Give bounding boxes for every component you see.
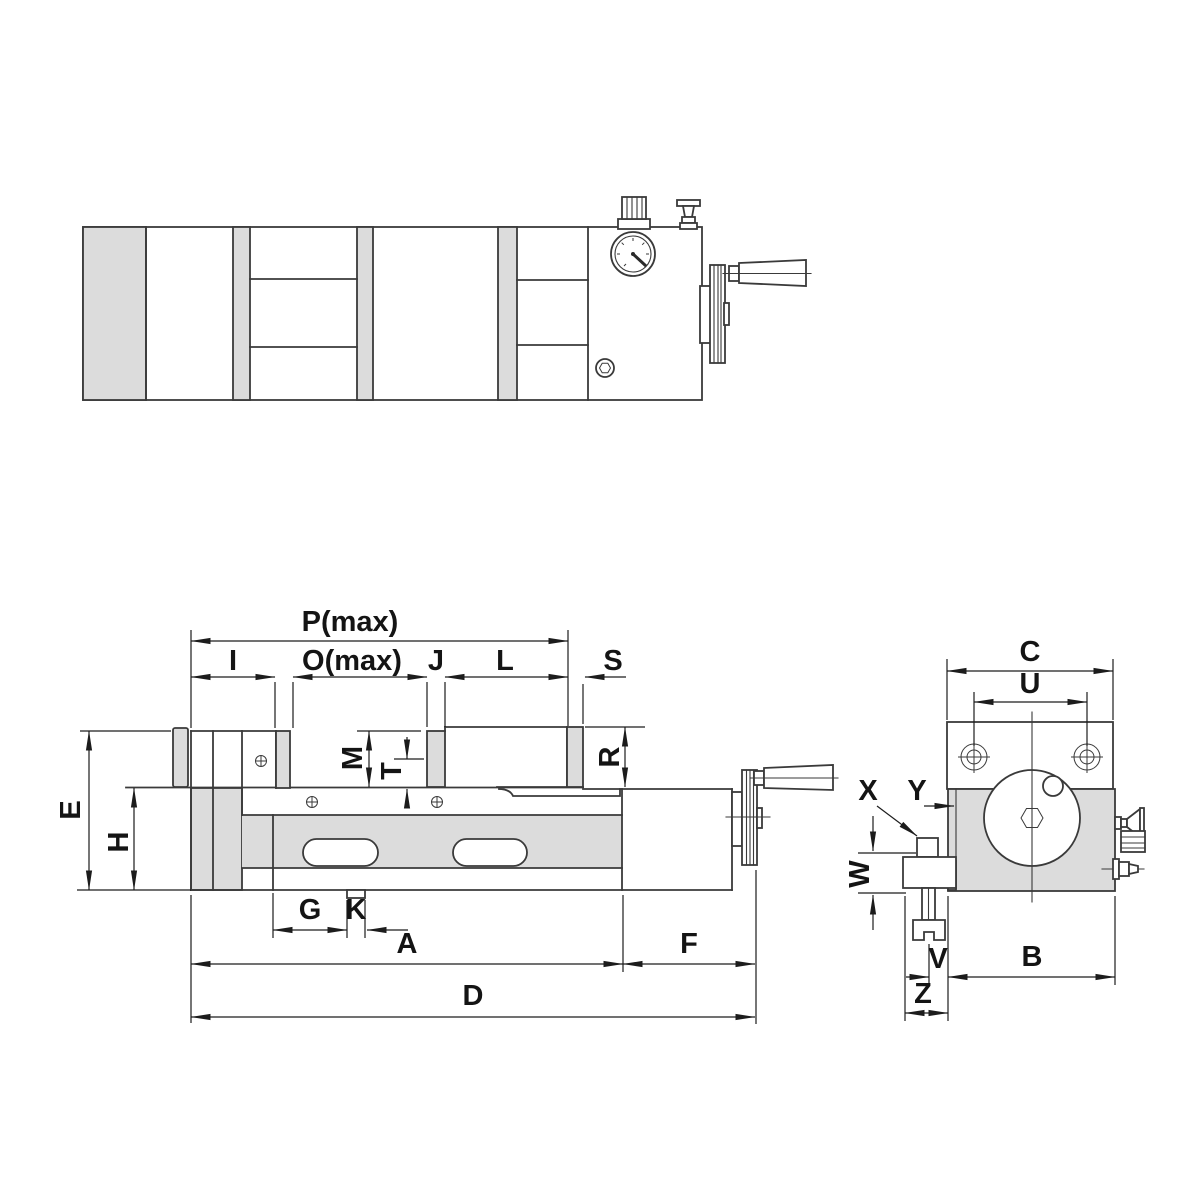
jaw-insert-movable [427, 731, 445, 787]
base-slot-2 [453, 839, 527, 866]
oil-port [1043, 776, 1063, 796]
clamp-tnut [913, 920, 945, 940]
bed-rib-band [242, 815, 622, 868]
dim-label-g: G [299, 894, 322, 926]
jaw-insert-fixed [276, 731, 290, 788]
dim-label-k: K [346, 894, 367, 926]
hydraulic-fitting-upper [1115, 808, 1145, 852]
dim-label-b: B [1022, 941, 1043, 973]
clamp-arm [903, 857, 956, 888]
dim-label-p-max: P(max) [302, 606, 399, 638]
dim-label-v: V [928, 943, 948, 975]
clamp-nut [917, 838, 938, 857]
top-view [83, 197, 811, 400]
drawing-canvas: P(max) I O(max) J L S M T R E H G K A F … [0, 0, 1200, 1200]
front-view [126, 727, 838, 898]
dim-label-f: F [680, 928, 698, 960]
dim-label-r: R [594, 746, 626, 767]
fixed-jaw-plate-plan [233, 227, 250, 400]
movable-jaw-plate-plan [498, 227, 517, 400]
fixed-jaw-support [191, 788, 242, 890]
hex-plug [596, 359, 614, 377]
dim-label-d: D [463, 980, 484, 1012]
dim-label-i: I [229, 645, 237, 677]
base-slot-1 [303, 839, 378, 866]
crank-handle-plan [700, 260, 811, 363]
dim-label-j: J [428, 645, 444, 677]
dim-x-leader [877, 806, 917, 836]
dim-label-o-max: O(max) [302, 645, 402, 677]
dim-label-a: A [397, 928, 418, 960]
dim-label-h: H [103, 832, 135, 853]
pressure-gauge [611, 232, 655, 276]
dim-label-w: W [844, 860, 876, 888]
dim-label-c: C [1020, 636, 1041, 668]
dim-label-m: M [337, 746, 369, 770]
stop-block-plan [83, 227, 146, 400]
bed-relief-step [499, 789, 620, 796]
jaw-end-plate [567, 727, 583, 787]
flow-control-knob [677, 200, 700, 229]
end-view [903, 712, 1145, 940]
dim-label-l: L [496, 645, 514, 677]
stop-plate [173, 728, 188, 787]
vise-technical-drawing: P(max) I O(max) J L S M T R E H G K A F … [0, 0, 1200, 1200]
dim-label-e: E [55, 800, 87, 819]
relief-valve-knob [618, 197, 650, 229]
dim-label-z: Z [914, 978, 932, 1010]
dim-label-t: T [376, 762, 408, 780]
dim-label-y: Y [907, 775, 926, 807]
screw-boss-front [732, 792, 742, 846]
dim-label-u: U [1020, 668, 1041, 700]
jaw-insert-plan [357, 227, 373, 400]
dim-label-x: X [858, 775, 878, 807]
dim-label-s: S [603, 645, 622, 677]
